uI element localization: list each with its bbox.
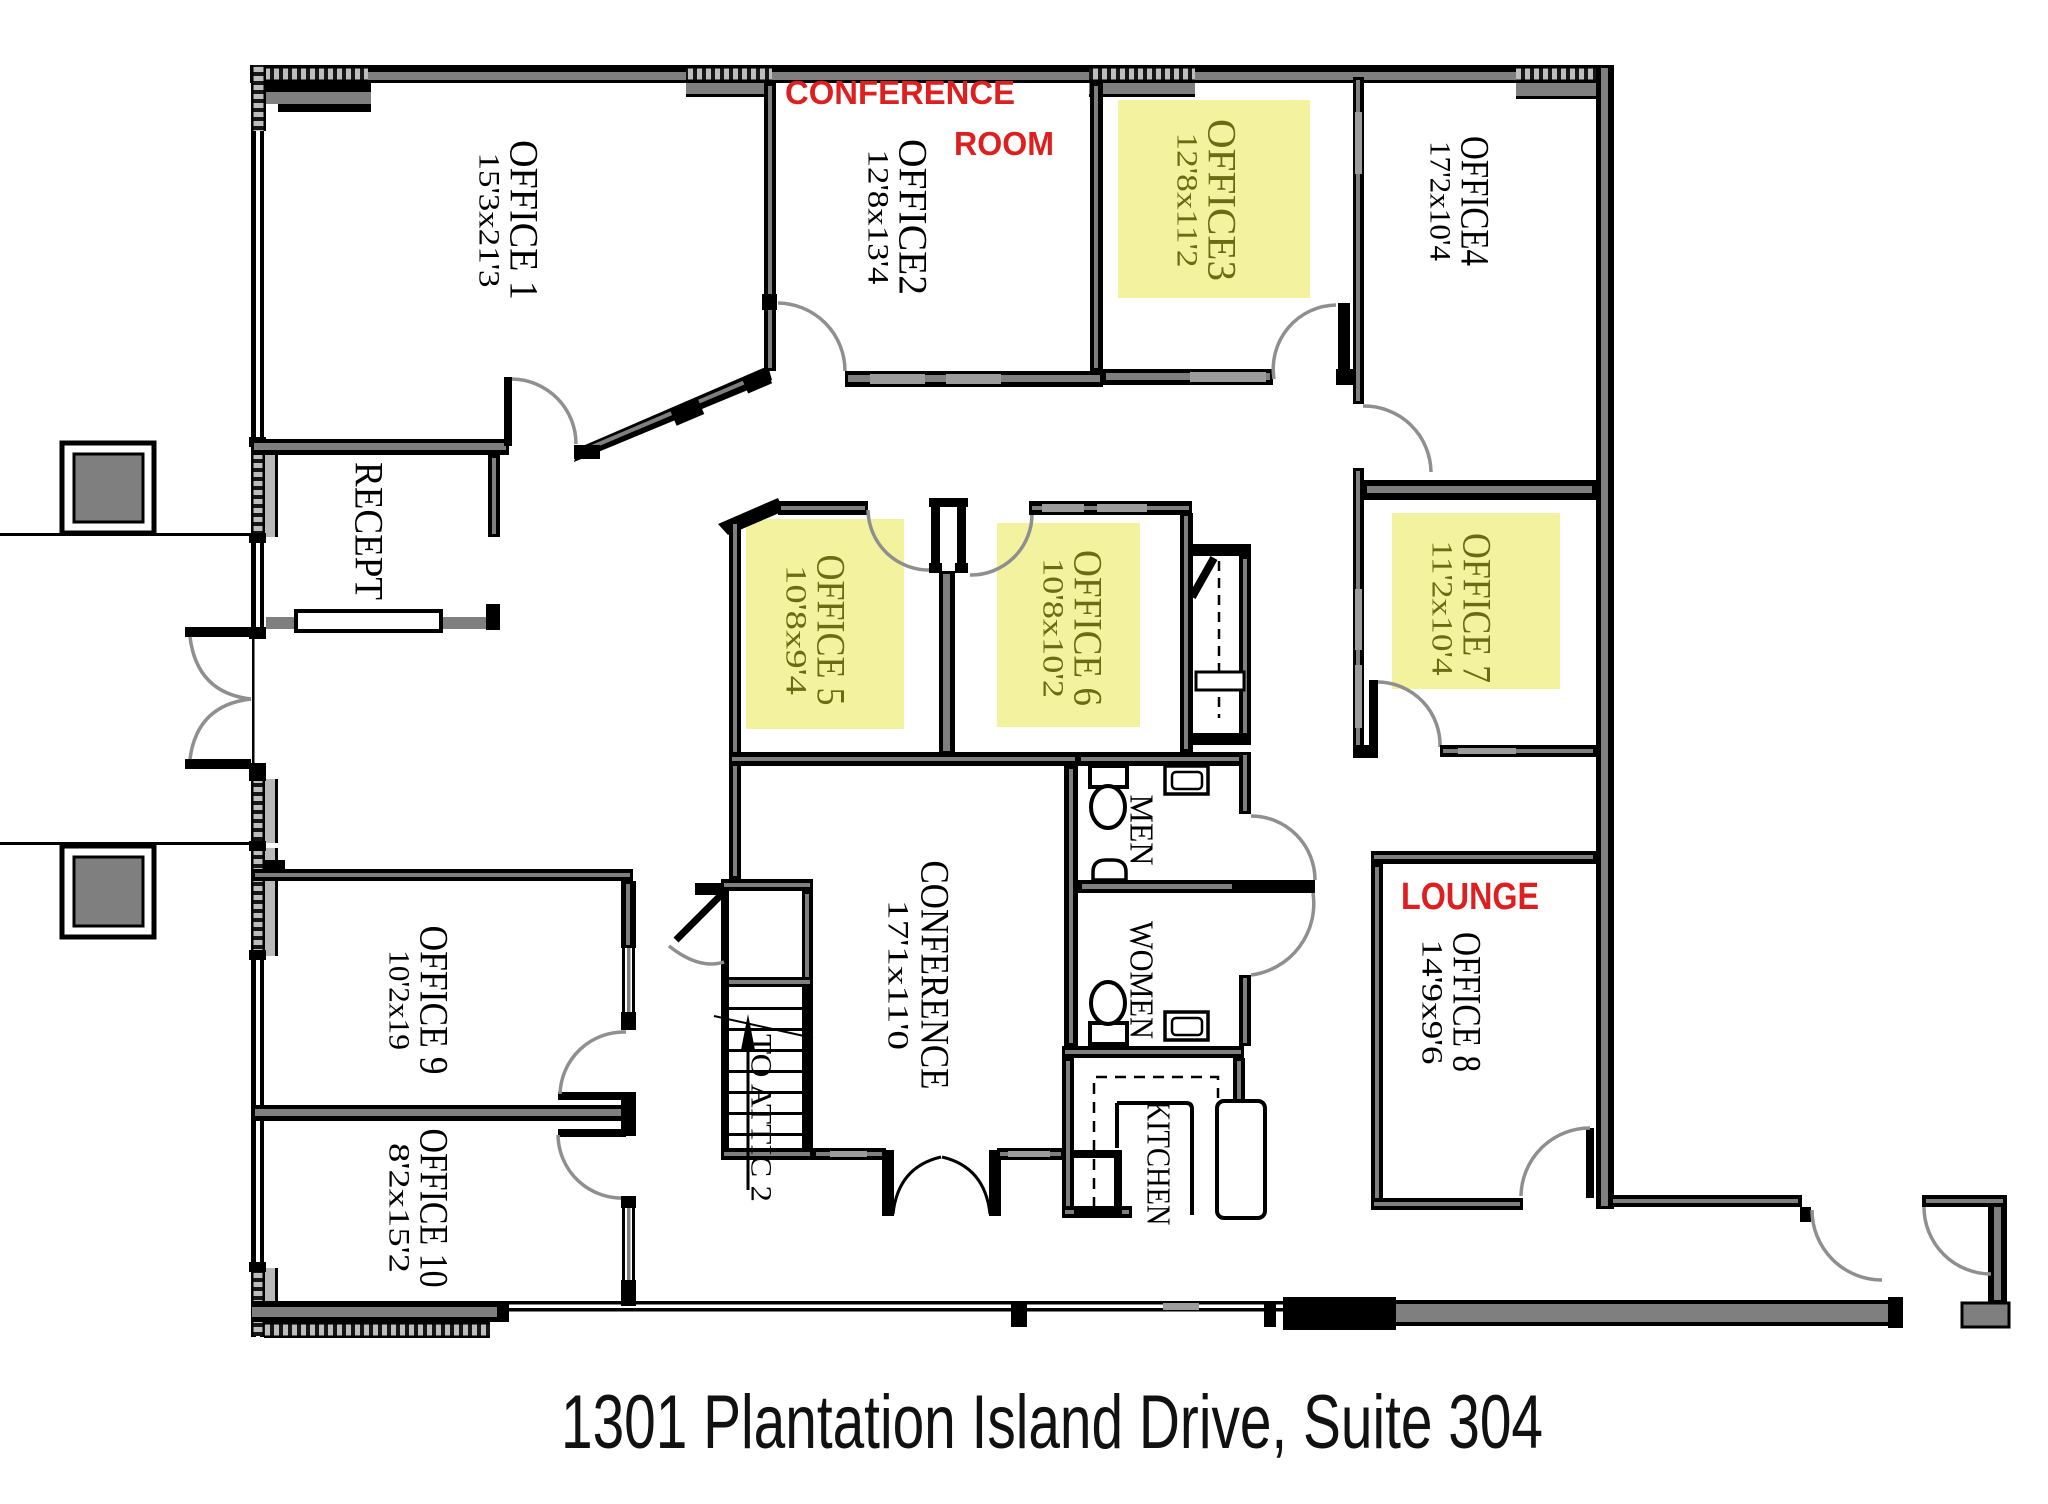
svg-text:12'8x13'4: 12'8x13'4 xyxy=(862,150,895,285)
svg-text:OFFICE 1: OFFICE 1 xyxy=(502,140,547,300)
svg-text:12'8x11'2: 12'8x11'2 xyxy=(1171,133,1204,268)
svg-text:OFFICE4: OFFICE4 xyxy=(1453,136,1498,266)
svg-text:OFFICE 7: OFFICE 7 xyxy=(1455,533,1500,683)
svg-text:LOUNGE: LOUNGE xyxy=(1401,876,1539,918)
svg-text:WOMEN: WOMEN xyxy=(1123,921,1160,1039)
svg-text:11'2x10'4: 11'2x10'4 xyxy=(1426,541,1459,676)
svg-text:OFFICE 10: OFFICE 10 xyxy=(412,1129,457,1288)
svg-text:10'8x9'4: 10'8x9'4 xyxy=(780,565,813,695)
svg-text:CONFERENCE: CONFERENCE xyxy=(785,74,1015,111)
svg-text:OFFICE2: OFFICE2 xyxy=(891,139,936,295)
svg-text:OFFICE3: OFFICE3 xyxy=(1200,119,1245,281)
svg-text:14'9x9'6: 14'9x9'6 xyxy=(1416,940,1449,1065)
svg-text:15'3x21'3: 15'3x21'3 xyxy=(473,153,506,288)
svg-text:MEN: MEN xyxy=(1123,795,1160,866)
svg-text:CONFERENCE: CONFERENCE xyxy=(913,861,958,1090)
svg-text:8'2x15'2: 8'2x15'2 xyxy=(383,1143,416,1273)
svg-text:10'2x19: 10'2x19 xyxy=(383,950,416,1050)
svg-text:1301 Plantation Island Drive,: 1301 Plantation Island Drive, Suite 304 xyxy=(561,1380,1543,1465)
svg-text:10'8x10'2: 10'8x10'2 xyxy=(1037,558,1070,698)
svg-text:RECEPT: RECEPT xyxy=(347,462,392,600)
svg-text:TO ATTIC 2: TO ATTIC 2 xyxy=(745,1034,778,1202)
svg-text:OFFICE 6: OFFICE 6 xyxy=(1066,550,1111,706)
svg-text:KITCHEN: KITCHEN xyxy=(1140,1101,1177,1226)
svg-text:17'2x10'4: 17'2x10'4 xyxy=(1424,141,1457,261)
svg-text:OFFICE 5: OFFICE 5 xyxy=(809,555,854,706)
svg-text:17'1x11'0: 17'1x11'0 xyxy=(882,900,915,1050)
svg-text:ROOM: ROOM xyxy=(954,125,1054,162)
svg-text:OFFICE 8: OFFICE 8 xyxy=(1445,932,1490,1072)
svg-text:OFFICE 9: OFFICE 9 xyxy=(412,926,457,1075)
